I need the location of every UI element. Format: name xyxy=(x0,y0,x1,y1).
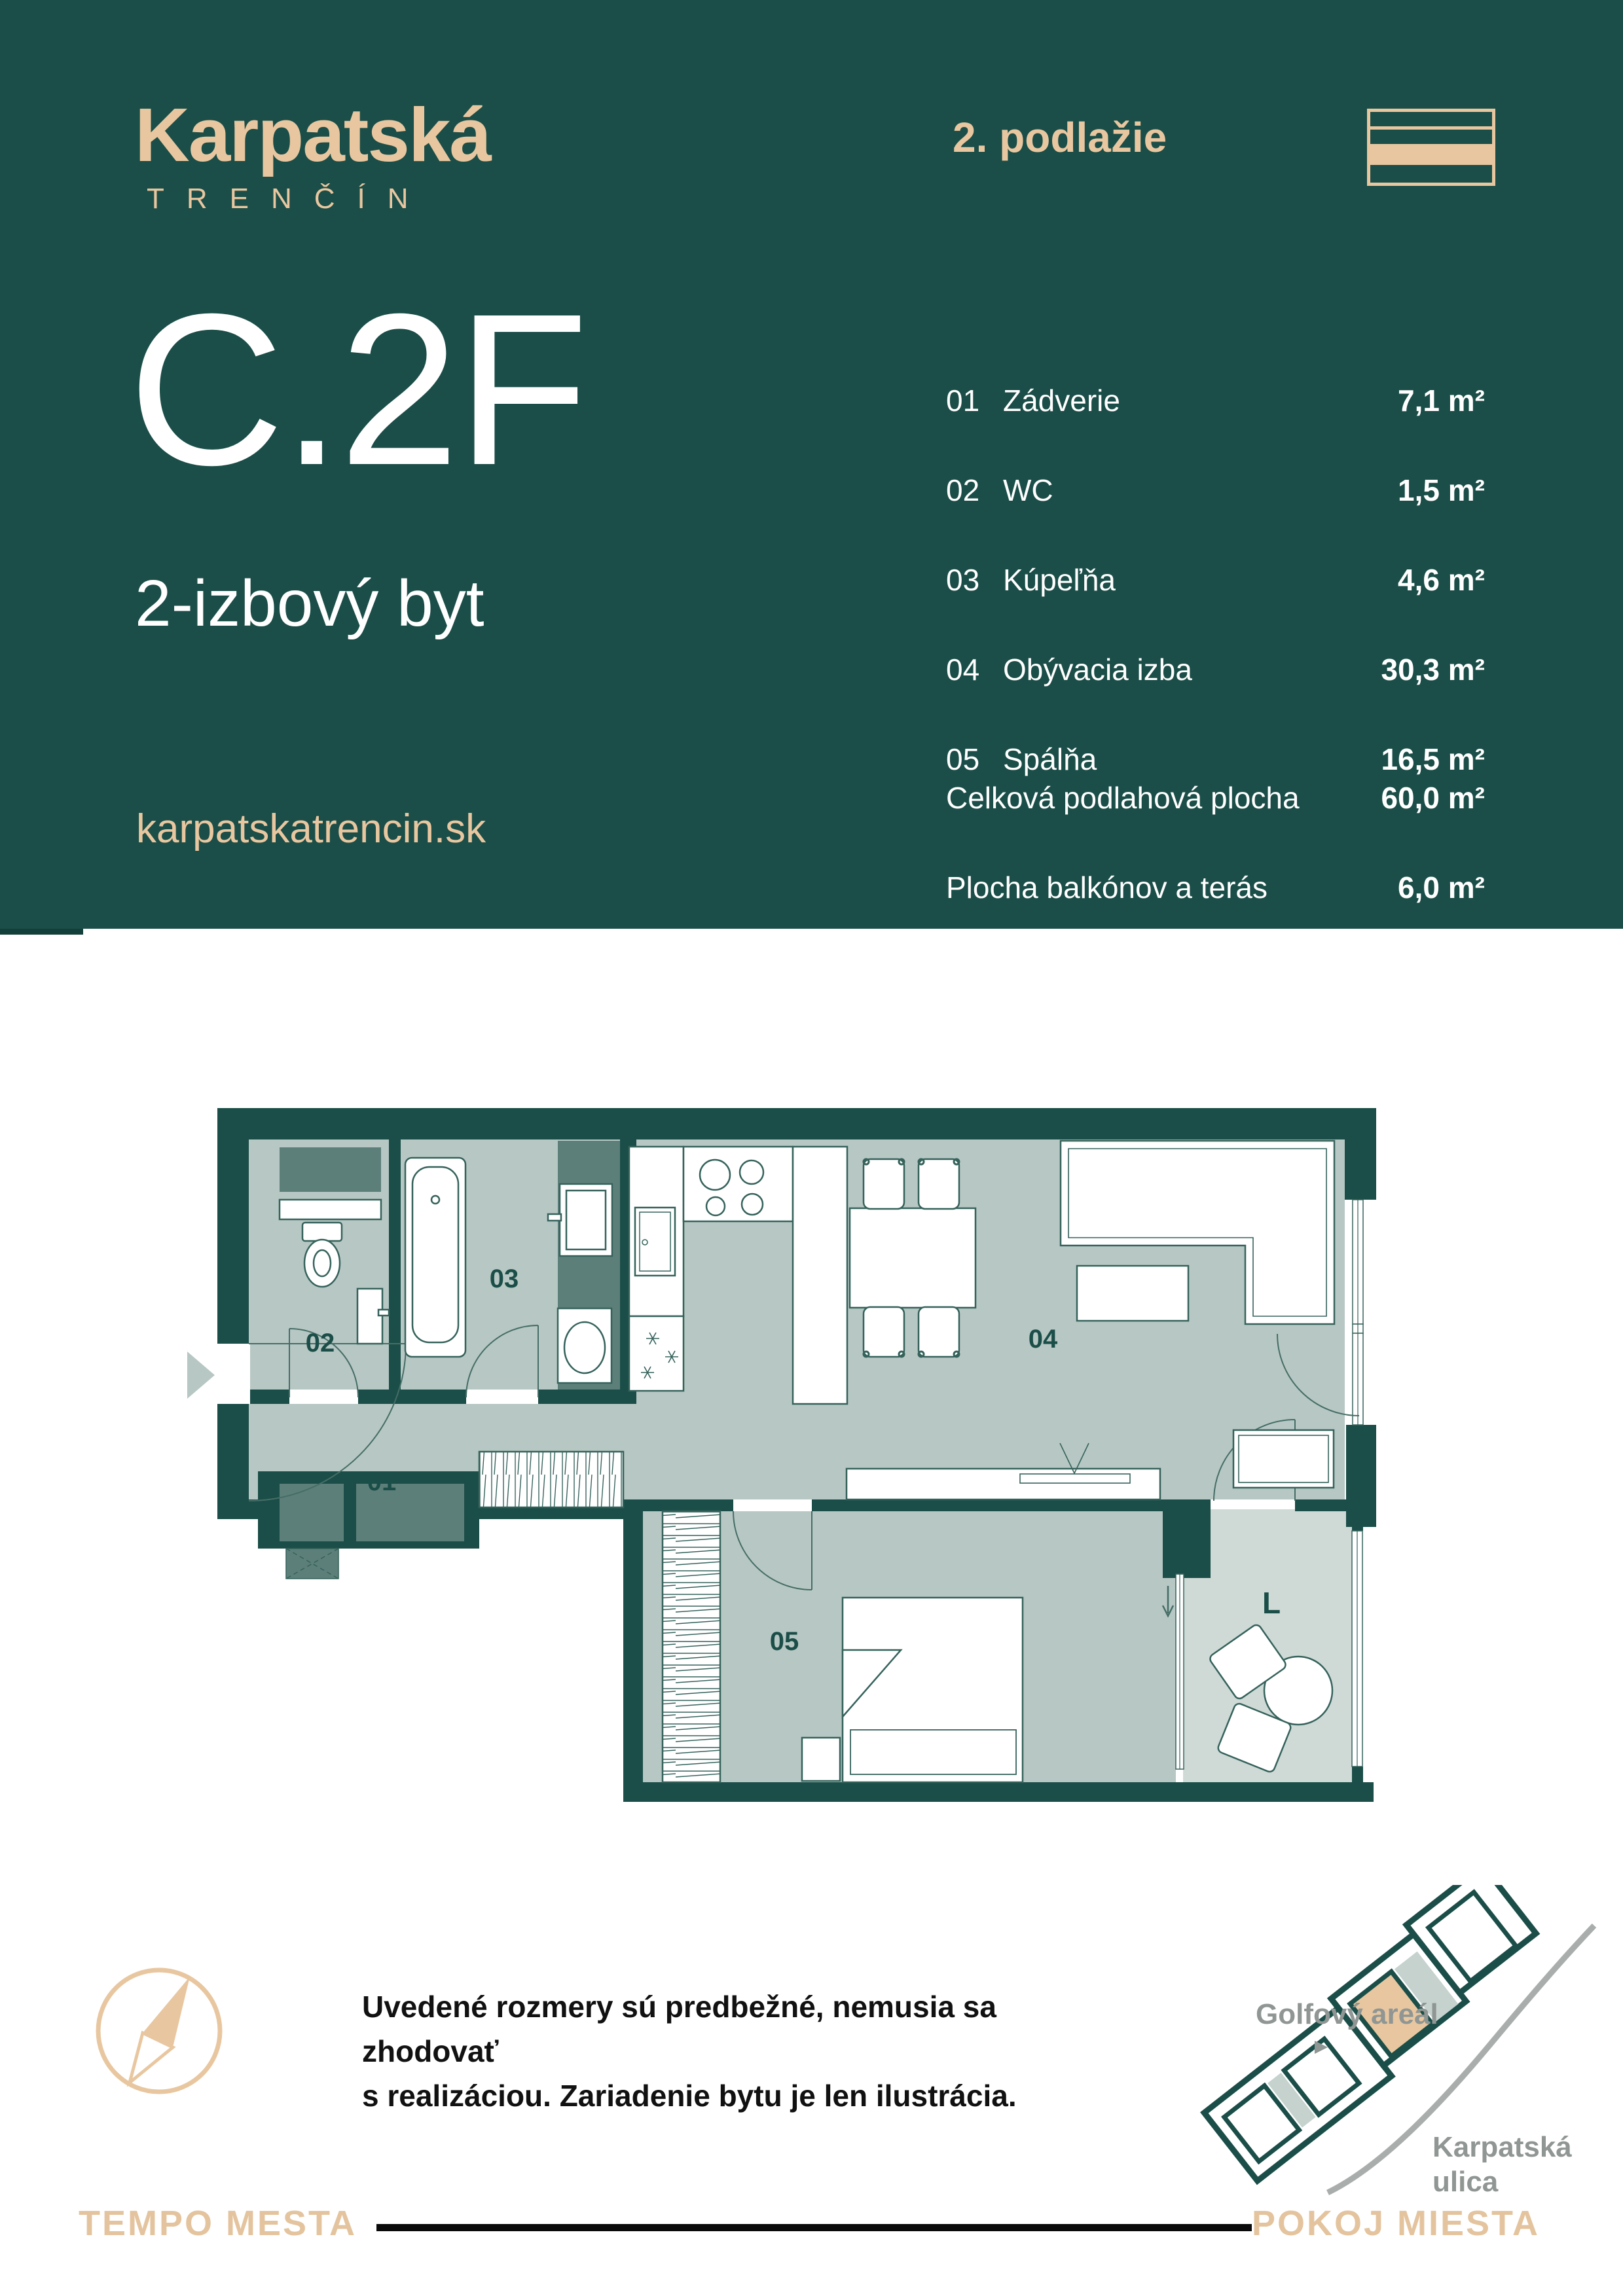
bed xyxy=(843,1598,1023,1782)
total-floor-area-row: Celková podlahová plocha 60,0 m² xyxy=(946,780,1485,817)
footer-left: TEMPO MESTA xyxy=(79,2206,357,2241)
street-label-line1: Karpatská xyxy=(1432,2131,1572,2163)
total-value: 6,0 m² xyxy=(1398,870,1485,905)
room-name: Zádverie xyxy=(1003,383,1120,418)
total-value: 60,0 m² xyxy=(1381,780,1485,816)
bath-sink-faucet xyxy=(548,1214,561,1221)
room-area: 30,3 m² xyxy=(1381,652,1485,687)
room-row-04: 04 Obývacia izba 30,3 m² xyxy=(946,652,1485,689)
wc-sink-faucet xyxy=(378,1310,389,1316)
site-map: Golfový areál Karpatská ulica xyxy=(1165,1885,1611,2199)
floor-level-icon xyxy=(1367,109,1495,186)
toilet-bowl xyxy=(304,1240,340,1287)
header-notch xyxy=(0,929,83,935)
wc-vanity xyxy=(280,1200,381,1219)
room-number: 01 xyxy=(946,383,979,418)
room-area: 7,1 m² xyxy=(1398,383,1485,418)
room-name: Obývacia izba xyxy=(1003,652,1192,687)
room-row-03: 03 Kúpeľňa 4,6 m² xyxy=(946,562,1485,599)
room-name: Spálňa xyxy=(1003,742,1097,777)
room-area: 1,5 m² xyxy=(1398,473,1485,508)
floor-band-3 xyxy=(1370,130,1492,147)
floor-plan: 01 02 03 04 05 L xyxy=(178,1108,1383,1808)
dining-chair xyxy=(864,1307,904,1357)
brand-logo-subtitle: TRENČÍN xyxy=(147,185,431,213)
room-row-01: 01 Zádverie 7,1 m² xyxy=(946,383,1485,420)
disclaimer-line-1: Uvedené rozmery sú predbežné, nemusia sa… xyxy=(362,1984,1115,2073)
room-area: 4,6 m² xyxy=(1398,562,1485,598)
label-loggia: L xyxy=(1262,1586,1281,1620)
label-room-04: 04 xyxy=(1029,1325,1058,1354)
golf-area-label: Golfový areál xyxy=(1256,1998,1438,2030)
bath-sink xyxy=(560,1184,612,1256)
room-name: Kúpeľňa xyxy=(1003,562,1116,598)
kitchen-cabinet-lower xyxy=(629,1316,684,1391)
floor-band-2-active xyxy=(1370,147,1492,165)
kitchen-counter-top xyxy=(684,1147,793,1221)
street-label-line2: ulica xyxy=(1432,2166,1499,2198)
room-row-05: 05 Spálňa 16,5 m² xyxy=(946,742,1485,778)
unit-code: C.2F xyxy=(128,281,586,497)
footer-right: POKOJ MIESTA xyxy=(1252,2206,1540,2241)
room-area: 16,5 m² xyxy=(1381,742,1485,777)
armchair xyxy=(1233,1430,1334,1488)
floor-label: 2. podlažie xyxy=(953,117,1167,158)
website-link[interactable]: karpatskatrencin.sk xyxy=(136,809,486,850)
disclaimer-text: Uvedené rozmery sú predbežné, nemusia sa… xyxy=(362,1984,1115,2118)
brochure-page: Karpatská TRENČÍN 2. podlažie C.2F 2-izb… xyxy=(0,0,1623,2296)
washing-machine xyxy=(558,1308,611,1383)
room-number: 05 xyxy=(946,742,979,777)
kitchen-island xyxy=(793,1147,847,1404)
label-room-01: 01 xyxy=(367,1467,397,1496)
toilet-tank xyxy=(302,1223,342,1241)
entrance-arrow-icon xyxy=(187,1352,215,1399)
room-name: WC xyxy=(1003,473,1053,508)
total-label: Plocha balkónov a terás xyxy=(946,870,1267,905)
tv xyxy=(1020,1474,1130,1483)
total-balcony-area-row: Plocha balkónov a terás 6,0 m² xyxy=(946,870,1485,906)
bathtub xyxy=(405,1158,465,1357)
unit-type: 2-izbový byt xyxy=(135,571,484,636)
dining-table xyxy=(850,1208,976,1308)
label-room-05: 05 xyxy=(770,1627,799,1656)
room-number: 04 xyxy=(946,652,979,687)
header-band: Karpatská TRENČÍN 2. podlažie C.2F 2-izb… xyxy=(0,0,1623,929)
total-label: Celková podlahová plocha xyxy=(946,780,1300,816)
footer-divider-line xyxy=(376,2224,1252,2231)
tv-bench xyxy=(847,1469,1160,1499)
kitchen-fridge xyxy=(635,1208,675,1276)
floor-band-4 xyxy=(1370,112,1492,130)
floor-band-1 xyxy=(1370,165,1492,183)
disclaimer-line-2: s realizáciou. Zariadenie bytu je len il… xyxy=(362,2073,1115,2118)
dining-chair xyxy=(919,1307,959,1357)
coffee-table xyxy=(1077,1266,1188,1321)
nightstand xyxy=(802,1738,840,1781)
bedroom-wardrobe-hatch xyxy=(663,1511,720,1782)
brand-logo: Karpatská xyxy=(135,97,490,173)
room-number: 02 xyxy=(946,473,979,508)
dining-chair xyxy=(864,1159,904,1209)
dining-chair xyxy=(919,1159,959,1209)
label-room-02: 02 xyxy=(306,1329,335,1357)
hall-wardrobe-hatch xyxy=(479,1452,623,1507)
room-number: 03 xyxy=(946,562,979,598)
room-row-02: 02 WC 1,5 m² xyxy=(946,473,1485,509)
label-room-03: 03 xyxy=(490,1265,519,1293)
compass-icon xyxy=(92,1962,229,2100)
